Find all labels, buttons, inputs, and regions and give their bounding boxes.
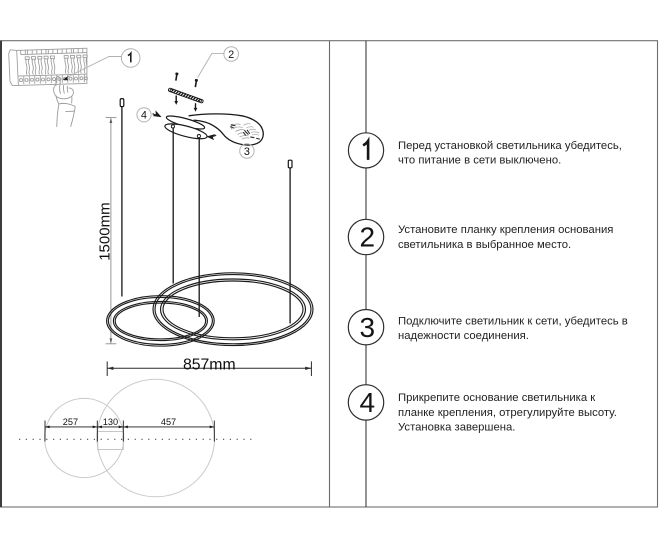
svg-text:457: 457 [161, 417, 176, 427]
svg-text:2: 2 [360, 222, 376, 253]
svg-text:Установите планку крепления ос: Установите планку крепления основания [398, 224, 613, 236]
svg-text:светильника в выбранное место.: светильника в выбранное место. [398, 239, 571, 251]
svg-text:4: 4 [141, 110, 147, 122]
svg-text:Подключите светильник к сети,: Подключите светильник к сети, убедитесь … [398, 315, 628, 327]
svg-text:Перед установкой светильника у: Перед установкой светильника убедитесь, [398, 140, 622, 152]
svg-text:130: 130 [103, 417, 118, 427]
svg-text:3: 3 [360, 312, 376, 343]
svg-text:планке крепления, отрегулируйт: планке крепления, отрегулируйте высоту. [398, 407, 617, 419]
svg-text:что питание в сети выключено.: что питание в сети выключено. [398, 155, 561, 167]
svg-text:надежности соединения.: надежности соединения. [398, 330, 529, 342]
svg-text:857mm: 857mm [183, 356, 236, 373]
svg-text:4: 4 [360, 387, 376, 418]
svg-text:2: 2 [228, 49, 234, 61]
svg-text:Установка завершена.: Установка завершена. [398, 422, 515, 434]
svg-text:3: 3 [244, 146, 250, 158]
svg-text:Прикрепите основание светильни: Прикрепите основание светильника к [398, 392, 595, 404]
svg-text:1500mm: 1500mm [97, 202, 114, 260]
svg-text:257: 257 [63, 417, 78, 427]
